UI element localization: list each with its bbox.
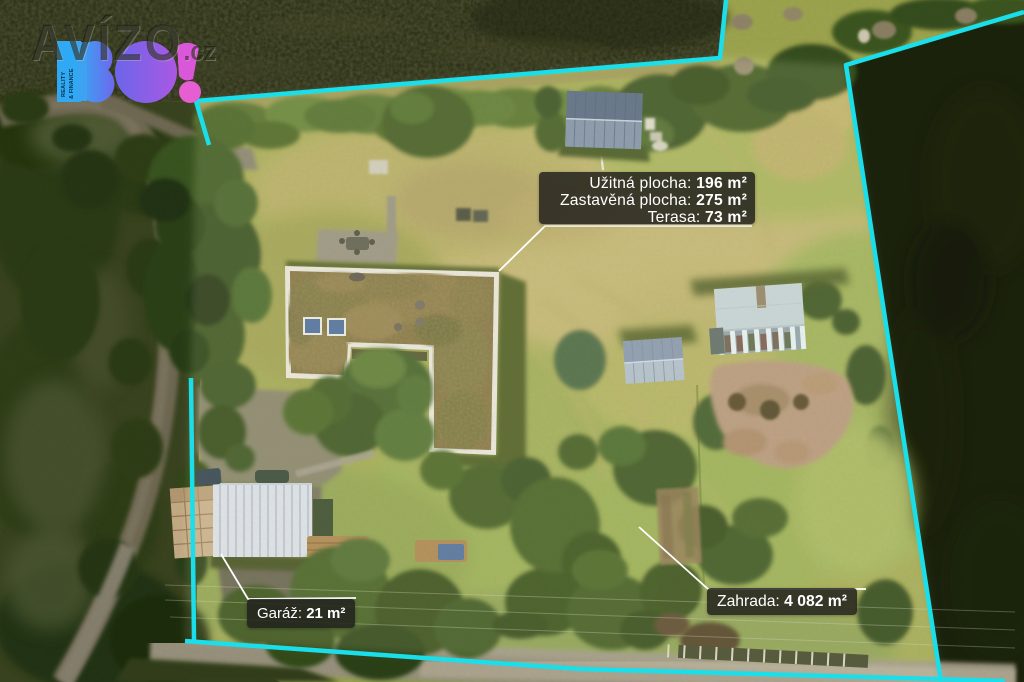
svg-text:& FINANCE: & FINANCE (69, 68, 75, 99)
svg-text:REALITY: REALITY (61, 72, 67, 97)
